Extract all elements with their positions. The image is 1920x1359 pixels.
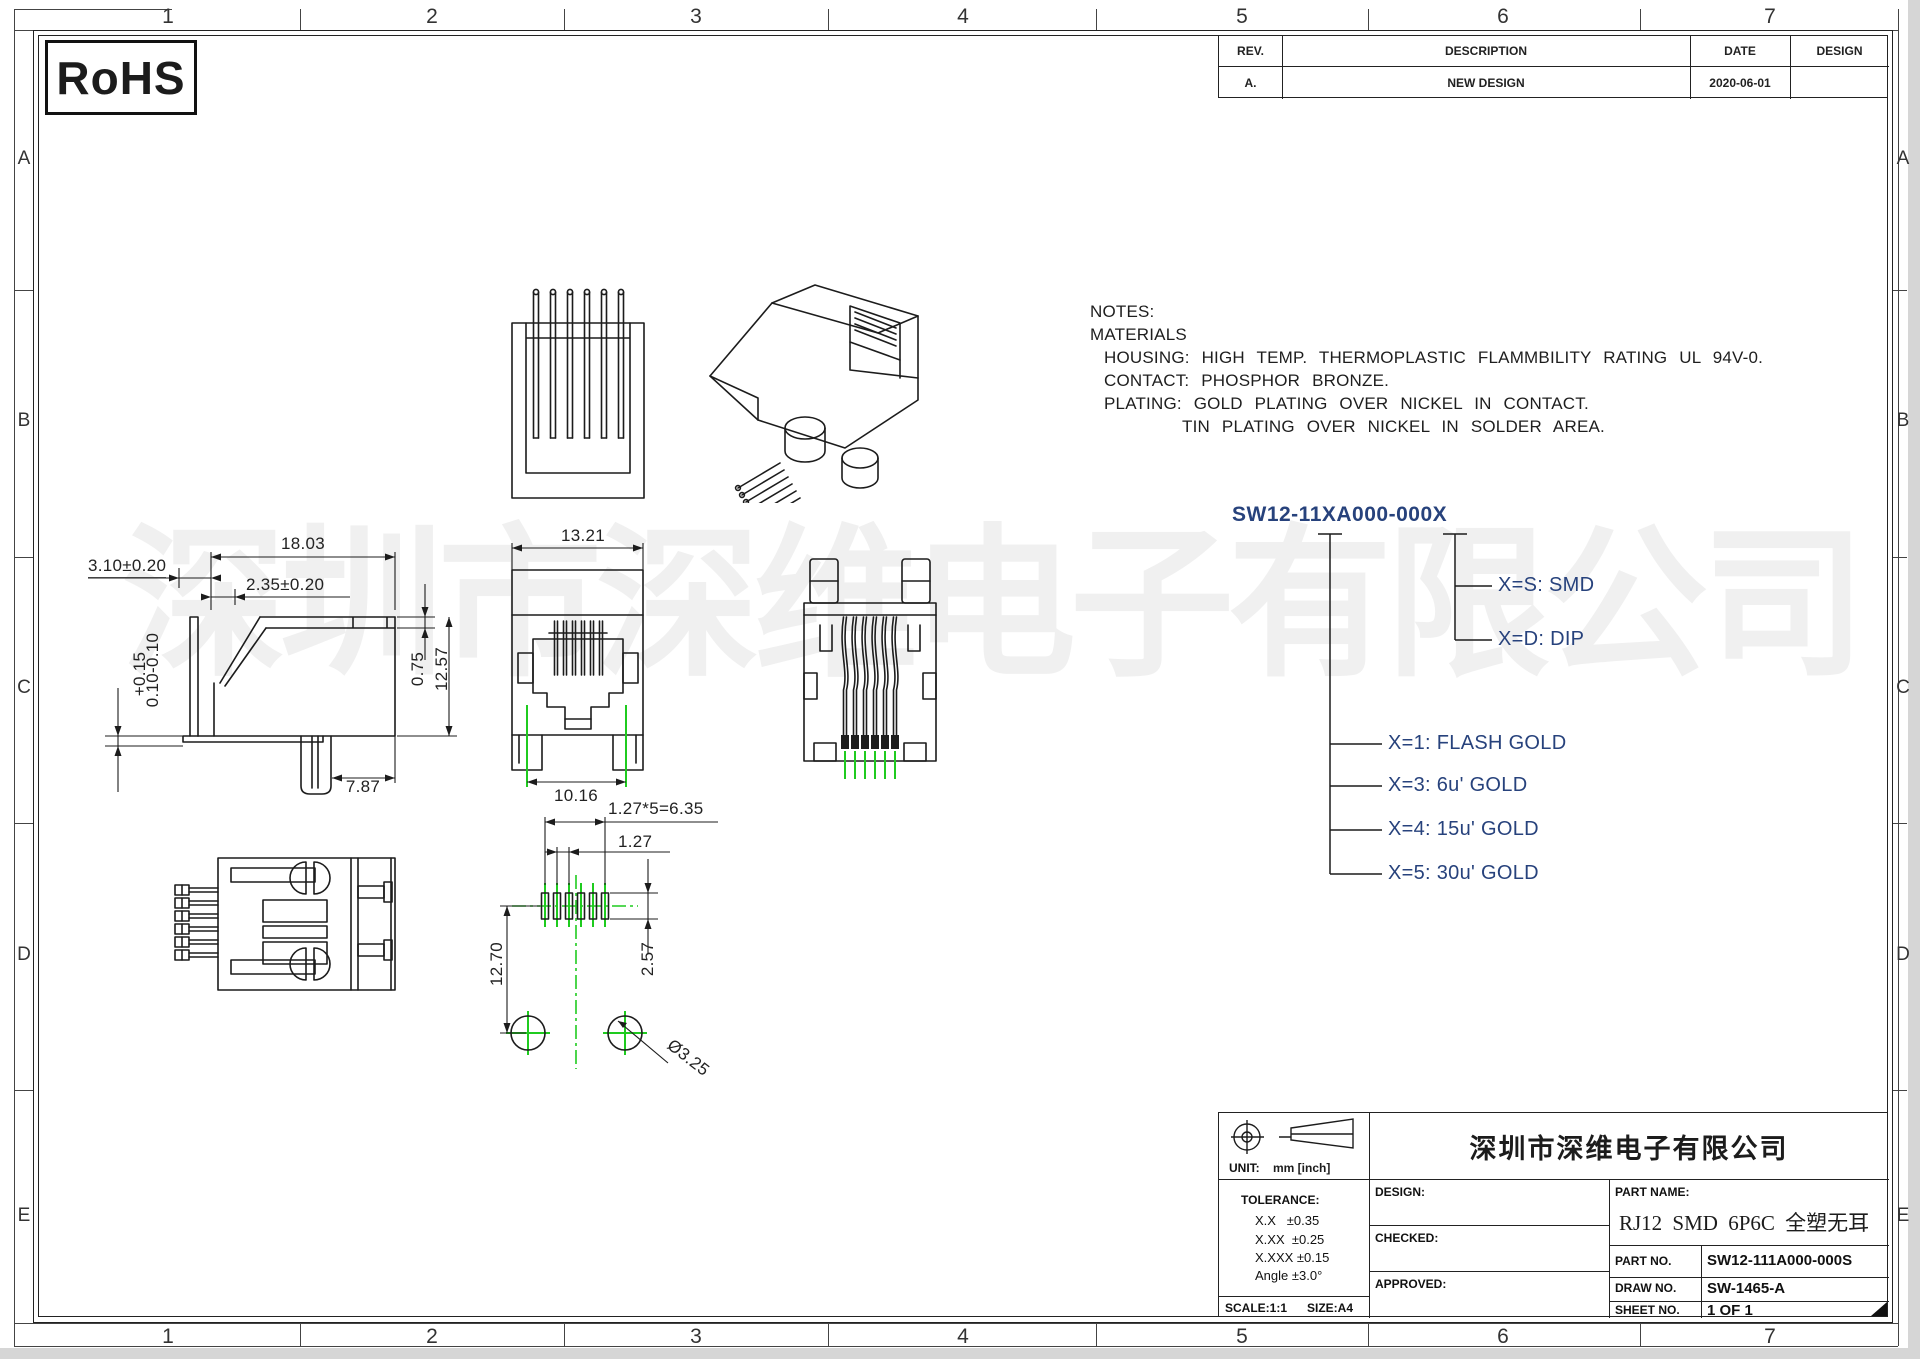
- tb-line: [1701, 1245, 1702, 1318]
- grid-tick: [14, 290, 33, 291]
- bottom-view-drawing: [155, 852, 405, 1002]
- tb-line: [1609, 1245, 1889, 1246]
- dim-side-width: 18.03: [268, 534, 338, 554]
- grid-row-left-C: C: [15, 677, 33, 699]
- grid-tick: [1893, 1090, 1907, 1091]
- sheet-bottom-edge-band: [0, 1348, 1920, 1359]
- rev-header-date: DATE: [1690, 44, 1790, 58]
- size-value: SIZE:A4: [1307, 1301, 1353, 1315]
- dim-side-b: 2.35±0.20: [246, 575, 324, 595]
- notes-title: NOTES:: [1090, 302, 1155, 322]
- tree-option-15u-gold: X=4: 15u' GOLD: [1388, 818, 1539, 841]
- tree-option-6u-gold: X=3: 6u' GOLD: [1388, 774, 1527, 797]
- tree-option-smd: X=S: SMD: [1498, 574, 1594, 597]
- grid-row-right-A: A: [1894, 148, 1912, 170]
- grid-tick: [828, 9, 829, 30]
- tb-line: [1609, 1277, 1889, 1278]
- dim-foot: 7.87: [333, 777, 393, 797]
- grid-tick: [1893, 557, 1907, 558]
- grid-row-right-D: D: [1894, 944, 1912, 966]
- grid-row-right-B: B: [1894, 410, 1912, 432]
- revision-table: REV. DESCRIPTION DATE DESIGN A. NEW DESI…: [1218, 35, 1888, 98]
- grid-tick: [1640, 9, 1641, 30]
- rear-view-drawing: [510, 288, 650, 508]
- grid-col-bot-6: 6: [1483, 1325, 1523, 1349]
- tree-option-dip: X=D: DIP: [1498, 628, 1584, 651]
- rev-header-rev: REV.: [1219, 44, 1282, 58]
- tree-option-30u-gold: X=5: 30u' GOLD: [1388, 862, 1539, 885]
- corner-fold-mark: [1871, 1302, 1887, 1316]
- grid-col-top-1: 1: [148, 5, 188, 29]
- grid-tick: [1096, 9, 1097, 30]
- grid-row-right-C: C: [1894, 677, 1912, 699]
- notes-materials: MATERIALS: [1090, 325, 1187, 345]
- rohs-badge: RoHS: [45, 40, 197, 115]
- grid-tick: [564, 1323, 565, 1346]
- dim-pad: 2.57: [638, 904, 658, 1014]
- dim-front-width: 13.21: [548, 526, 618, 546]
- rev-cell-date: 2020-06-01: [1690, 76, 1790, 90]
- tolerance-row-4: Angle ±3.0°: [1255, 1268, 1322, 1283]
- tb-line: [1609, 1179, 1610, 1318]
- draw-no-value: SW-1465-A: [1707, 1280, 1785, 1297]
- notes-tin: TIN PLATING OVER NICKEL IN SOLDER AREA.: [1182, 417, 1605, 437]
- sheet-no-label: SHEET NO.: [1615, 1303, 1680, 1317]
- grid-col-bot-5: 5: [1222, 1325, 1262, 1349]
- tolerance-row-3: X.XXX ±0.15: [1255, 1250, 1329, 1265]
- grid-col-top-7: 7: [1750, 5, 1790, 29]
- tolerance-row-1: X.X ±0.35: [1255, 1213, 1319, 1228]
- grid-col-bot-1: 1: [148, 1325, 188, 1349]
- dim-side-a: 3.10±0.20: [88, 556, 166, 578]
- grid-tick: [1368, 1323, 1369, 1346]
- grid-tick: [300, 1323, 301, 1346]
- checked-label: CHECKED:: [1375, 1231, 1438, 1245]
- grid-col-top-5: 5: [1222, 5, 1262, 29]
- drawing-sheet: 深圳市深维电子有限公司 1 2 3 4 5 6 7 1 2 3 4 5 6 7 …: [0, 0, 1920, 1359]
- dim-front-feet: 10.16: [541, 786, 611, 806]
- grid-tick: [564, 9, 565, 30]
- tb-line: [1369, 1225, 1609, 1226]
- isometric-view-drawing: [700, 278, 940, 508]
- grid-row-left-B: B: [15, 410, 33, 432]
- grid-tick: [1368, 9, 1369, 30]
- tb-line: [1219, 1296, 1369, 1297]
- grid-tick: [1893, 290, 1907, 291]
- tolerance-title: TOLERANCE:: [1241, 1193, 1319, 1207]
- grid-tick: [14, 823, 33, 824]
- rev-cell-rev: A.: [1219, 76, 1282, 90]
- grid-tick: [300, 9, 301, 30]
- grid-col-bot-7: 7: [1750, 1325, 1790, 1349]
- dim-wall: 0.75: [408, 614, 428, 724]
- projection-symbols: [1231, 1118, 1361, 1161]
- rev-header-description: DESCRIPTION: [1282, 44, 1690, 58]
- rev-cell-description: NEW DESIGN: [1282, 76, 1690, 90]
- dim-pitch-total: 1.27*5=6.35: [608, 799, 703, 819]
- tb-line: [1369, 1271, 1609, 1272]
- grid-col-top-3: 3: [676, 5, 716, 29]
- part-name-label: PART NAME:: [1615, 1185, 1689, 1199]
- draw-no-label: DRAW NO.: [1615, 1281, 1676, 1295]
- grid-row-left-A: A: [15, 148, 33, 170]
- grid-col-bot-2: 2: [412, 1325, 452, 1349]
- grid-col-top-4: 4: [943, 5, 983, 29]
- unit-label: UNIT:: [1229, 1161, 1260, 1175]
- grid-tick: [14, 557, 33, 558]
- grid-col-bot-4: 4: [943, 1325, 983, 1349]
- approved-label: APPROVED:: [1375, 1277, 1446, 1291]
- ruler-bottom-line: [14, 1323, 1898, 1324]
- unit-value: mm [inch]: [1273, 1161, 1330, 1175]
- company-name: 深圳市深维电子有限公司: [1369, 1127, 1889, 1166]
- grid-col-top-6: 6: [1483, 5, 1523, 29]
- rev-header-design: DESIGN: [1790, 44, 1889, 58]
- notes-housing: HOUSING: HIGH TEMP. THERMOPLASTIC FLAMMB…: [1104, 348, 1763, 368]
- dim-side-tol-bot: 0.10-0.10: [143, 615, 163, 725]
- back-view-drawing: [800, 555, 940, 788]
- rohs-label: RoHS: [56, 51, 185, 105]
- notes-contact: CONTACT: PHOSPHOR BRONZE.: [1104, 371, 1389, 391]
- grid-tick: [828, 1323, 829, 1346]
- grid-tick: [1096, 1323, 1097, 1346]
- tree-option-flash-gold: X=1: FLASH GOLD: [1388, 732, 1566, 755]
- front-view-drawing: [505, 535, 665, 802]
- part-no-value: SW12-111A000-000S: [1707, 1252, 1852, 1269]
- rev-row-line: [1219, 66, 1889, 67]
- dim-pitch: 1.27: [618, 832, 652, 852]
- title-block: UNIT: mm [inch] TOLERANCE: X.X ±0.35 X.X…: [1218, 1112, 1888, 1317]
- grid-col-bot-3: 3: [676, 1325, 716, 1349]
- dim-height: 12.57: [432, 614, 452, 724]
- dim-row: 12.70: [487, 909, 507, 1019]
- grid-tick: [1640, 1323, 1641, 1346]
- grid-col-top-2: 2: [412, 5, 452, 29]
- part-no-label: PART NO.: [1615, 1254, 1671, 1268]
- grid-tick: [14, 1090, 33, 1091]
- part-number-root: SW12-11XA000-000X: [1232, 503, 1447, 527]
- sheet-no-value: 1 OF 1: [1707, 1302, 1753, 1319]
- design-label: DESIGN:: [1375, 1185, 1425, 1199]
- tb-line: [1219, 1179, 1889, 1180]
- grid-row-left-E: E: [15, 1205, 33, 1227]
- scale-value: SCALE:1:1: [1225, 1301, 1287, 1315]
- grid-tick: [1893, 823, 1907, 824]
- grid-row-right-E: E: [1894, 1205, 1912, 1227]
- tolerance-row-2: X.XX ±0.25: [1255, 1232, 1324, 1247]
- grid-row-left-D: D: [15, 944, 33, 966]
- part-name-value: RJ12 SMD 6P6C 全塑无耳: [1619, 1207, 1869, 1237]
- notes-plating: PLATING: GOLD PLATING OVER NICKEL IN CON…: [1104, 394, 1589, 414]
